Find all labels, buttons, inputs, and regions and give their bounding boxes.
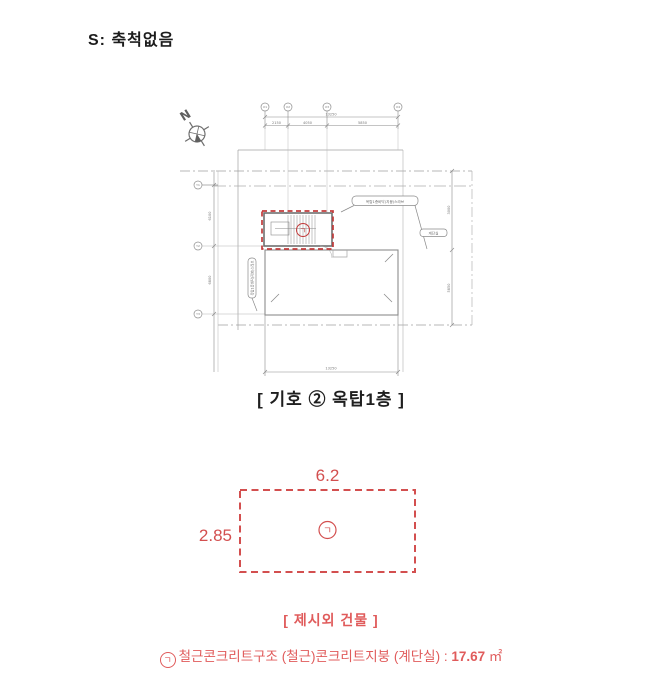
dimension-bottom: 13250 <box>263 315 400 376</box>
north-letter: N <box>177 107 193 124</box>
appraisal-drawing-page: S: 축척없음 N <box>0 0 662 700</box>
svg-text:5850: 5850 <box>358 121 367 125</box>
svg-text:X4: X4 <box>396 105 400 109</box>
roof-slab-outline <box>265 250 398 315</box>
annex-caption: [ 제시외 건물 ] <box>0 610 662 630</box>
svg-text:Y2: Y2 <box>196 244 200 248</box>
svg-text:5850: 5850 <box>447 284 451 293</box>
unit-symbol-annex: ㄱ <box>319 522 336 539</box>
svg-text:옥탑1층바닥(지붕)스라브: 옥탑1층바닥(지붕)스라브 <box>366 199 405 204</box>
north-compass-icon: N <box>170 102 217 153</box>
footer-description: 철근콘크리트구조 (철근)콘크리트지붕 (계단실) : <box>179 649 452 664</box>
svg-text:계단실: 계단실 <box>429 230 439 235</box>
svg-text:X2: X2 <box>286 105 290 109</box>
svg-text:13250: 13250 <box>325 367 336 371</box>
footer-note: ㄱ철근콘크리트구조 (철근)콘크리트지붕 (계단실) : 17.67 ㎡ <box>0 645 662 668</box>
dimension-left: 6100 6800 <box>208 170 216 372</box>
right-tag-label: 계단실 <box>420 229 447 237</box>
footer-area-unit: ㎡ <box>489 649 503 664</box>
svg-text:Y1: Y1 <box>196 183 200 187</box>
unit-symbol-footer: ㄱ <box>160 652 176 668</box>
annex-height-label: 2.85 <box>190 526 232 546</box>
grid-bubbles-top: X1 X2 X3 X4 <box>261 103 402 111</box>
annex-sketch: ㄱ <box>240 490 415 572</box>
svg-text:X3: X3 <box>325 105 329 109</box>
svg-text:13250: 13250 <box>325 112 336 116</box>
svg-text:X1: X1 <box>263 105 267 109</box>
svg-text:옥탑1층바닥(지붕)스라브: 옥탑1층바닥(지붕)스라브 <box>249 260 254 295</box>
unit-symbol-letter: ㄱ <box>163 655 171 665</box>
footer-area-value: 17.67 <box>451 649 485 664</box>
svg-text:ㄱ: ㄱ <box>300 226 307 235</box>
dimension-top: 13250 2150 4050 5850 <box>263 111 400 129</box>
svg-text:3000: 3000 <box>447 206 451 215</box>
svg-text:6800: 6800 <box>208 276 212 285</box>
stair-room: ㄱ <box>262 211 333 258</box>
svg-text:2150: 2150 <box>272 121 281 125</box>
svg-text:4050: 4050 <box>303 121 312 125</box>
plan-caption: [ 기호 ② 옥탑1층 ] <box>0 385 662 410</box>
dimension-right: 3000 5850 <box>447 169 454 327</box>
svg-text:ㄱ: ㄱ <box>323 526 332 537</box>
roof-balloon-label: 옥탑1층바닥(지붕)스라브 <box>341 196 427 249</box>
left-balloon-label: 옥탑1층바닥(지붕)스라브 <box>248 258 257 311</box>
svg-text:Y3: Y3 <box>196 312 200 316</box>
annex-width-label: 6.2 <box>240 466 415 486</box>
floor-plan-drawing: N X1 X2 X3 X4 <box>0 0 662 700</box>
svg-text:6100: 6100 <box>208 212 212 221</box>
